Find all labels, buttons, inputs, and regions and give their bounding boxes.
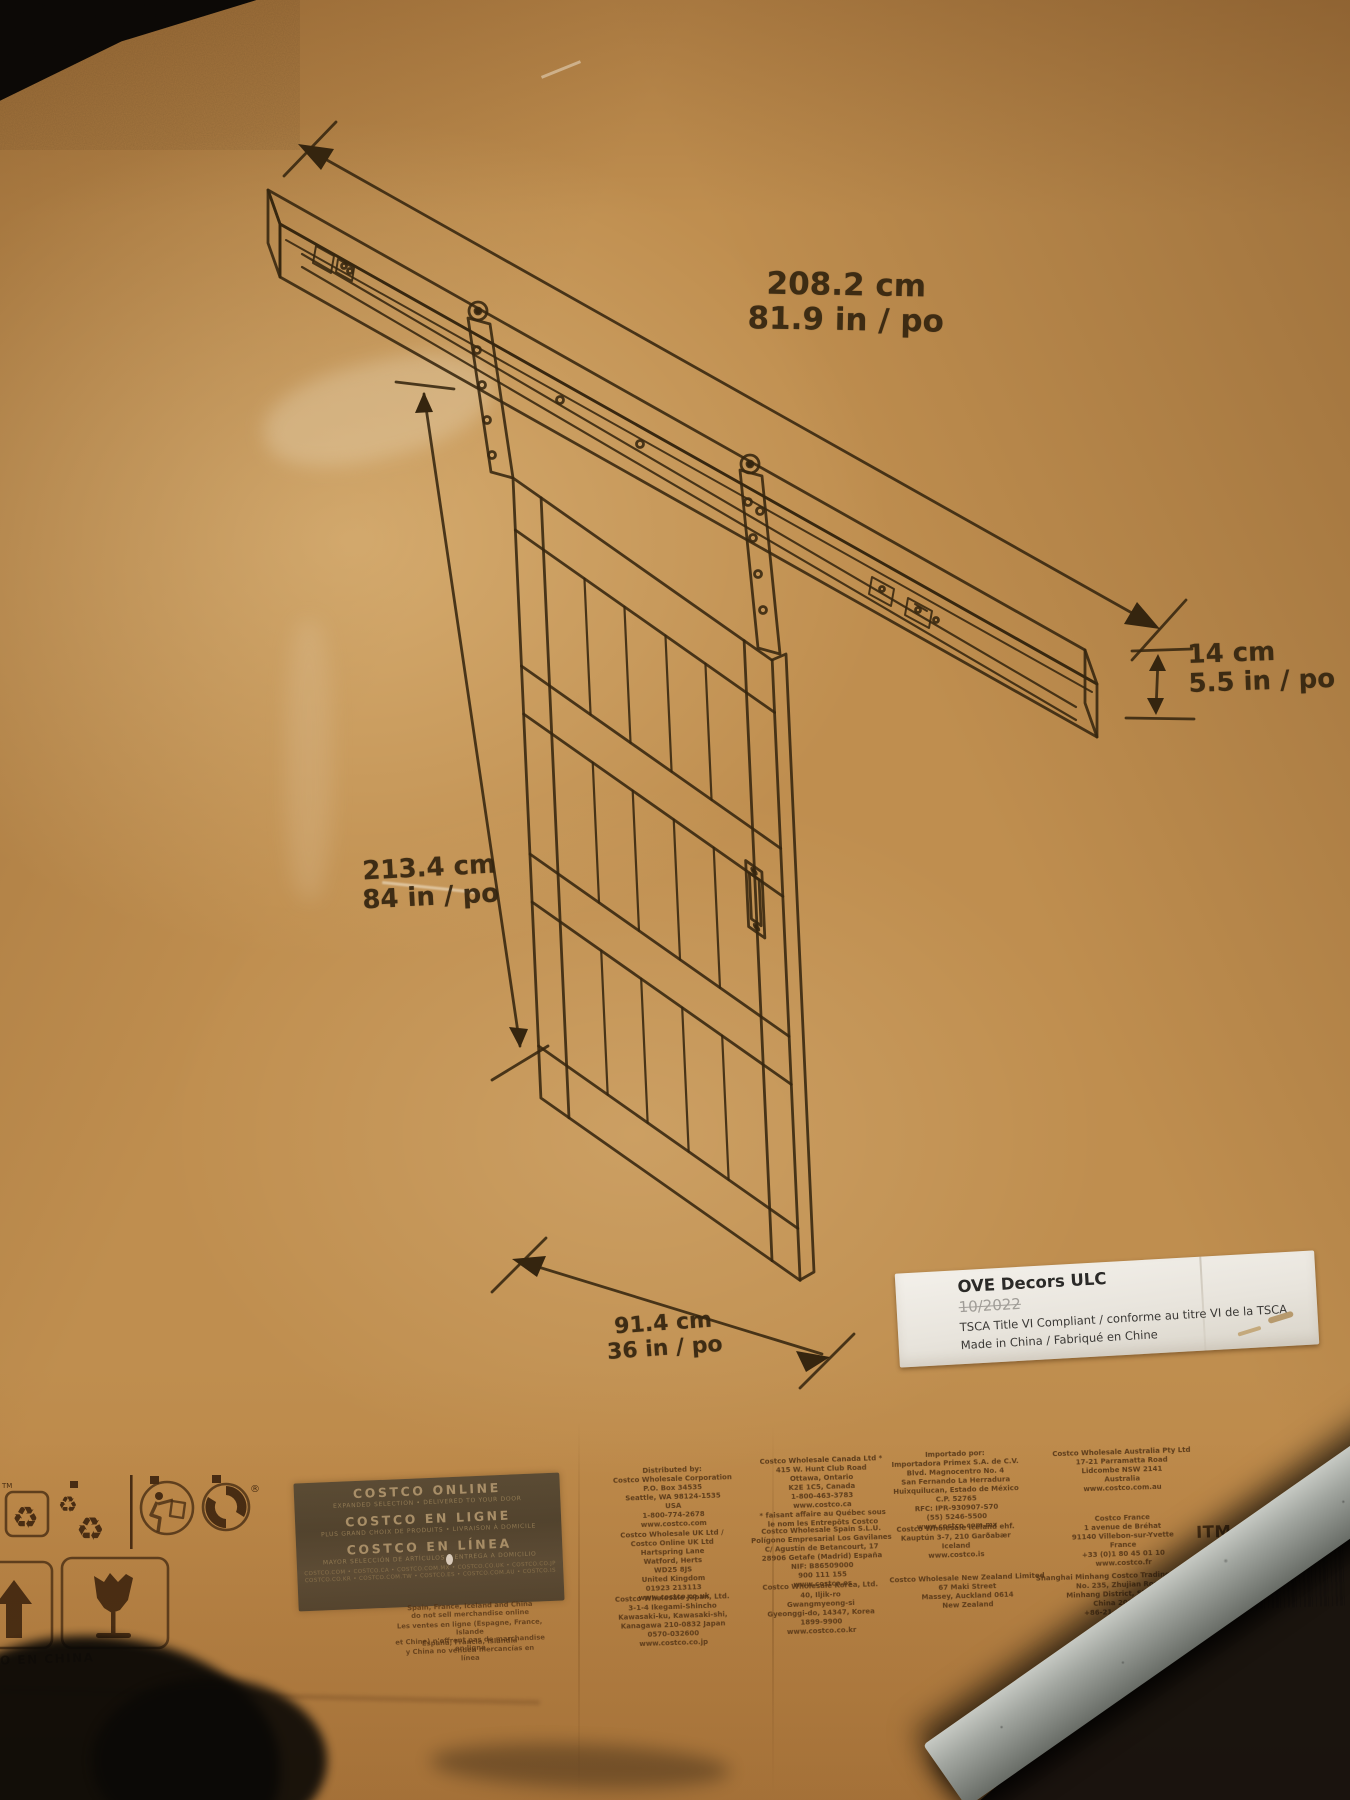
costco-online-panel: COSTCO ONLINE EXPANDED SELECTION • DELIV… [293,1472,564,1611]
dimension-rail-height [1126,649,1194,719]
print-mark [212,1475,221,1483]
floor-shadow [429,1739,730,1793]
barn-door [513,478,800,1280]
corrugated-recycle-icon: ♻ [6,1492,48,1536]
address-france: Costco France 1 avenue de Bréhat 91140 V… [1057,1512,1189,1570]
door-handle [746,861,765,938]
rail-length-label: 208.2 cm 81.9 in / po [689,265,1002,340]
address-mexico: Importado por: Importadora Primex S.A. d… [884,1448,1028,1533]
door-height-label: 213.4 cm 84 in / po [329,849,532,918]
svg-text:♻: ♻ [58,1493,78,1518]
registered-mark: ® [250,1484,260,1495]
compliance-sticker: OVE Decors ULC 10/2022 TSCA Title VI Com… [895,1250,1320,1367]
green-dot-icon [203,1484,249,1530]
rail-length-imperial: 81.9 in / po [689,300,1002,340]
address-korea: Costco Wholesale Korea, Ltd. 40, Iljik-r… [754,1580,888,1638]
scuff-mark [286,620,332,900]
svg-text:♻: ♻ [76,1510,105,1548]
dimension-door-height [396,382,548,1080]
box-crease [772,1425,774,1797]
address-iceland: Costco Wholesale Iceland ehf. Kauptún 3-… [887,1522,1024,1562]
door-edge-thickness [772,654,814,1280]
scratch-mark [541,60,581,79]
online-note-es: España, Francia, Islandia y China no ven… [405,1636,536,1665]
door-hanger-straps [468,302,780,654]
fragile-glass-icon [62,1558,168,1648]
address-us: Distributed by: Costco Wholesale Corpora… [611,1464,735,1531]
address-new-zealand: Costco Wholesale New Zealand Limited 67 … [884,1571,1050,1612]
mobius-recycle-icon: ♻ ♻ [58,1493,105,1548]
scuff-mark [254,335,502,484]
tm-mark: TM [1,1482,12,1490]
tape-speck [446,1554,453,1565]
cardboard-grain [0,0,300,150]
rail-height-label: 14 cm 5.5 in / po [1187,635,1350,699]
box-photo: 208.2 cm 81.9 in / po 14 cm 5.5 in / po … [0,0,1350,1800]
rail-length-metric: 208.2 cm [690,265,1003,305]
icon-divider [130,1475,133,1549]
svg-text:♻: ♻ [12,1501,39,1536]
print-mark [70,1481,78,1488]
tidyman-icon [141,1482,193,1534]
address-japan: Costco Wholesale Japan, Ltd. 3-1-4 Ikega… [605,1592,741,1650]
door-width-label: 91.4 cm 36 in / po [567,1305,762,1368]
this-side-up-icon [0,1562,52,1648]
address-australia: Costco Wholesale Australia Pty Ltd 17-21… [1045,1446,1198,1496]
rail-height-imperial: 5.5 in / po [1188,664,1350,699]
online-note-en: Spain, France, Iceland and China do not … [405,1600,535,1621]
